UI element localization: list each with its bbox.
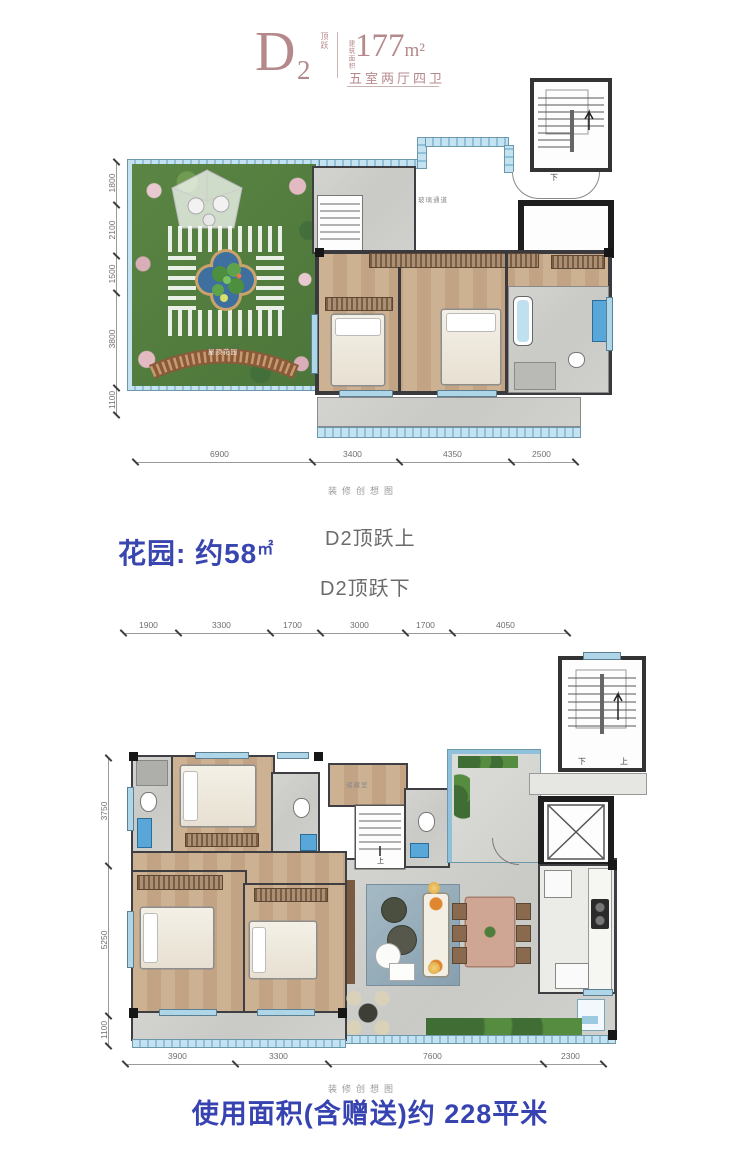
upper-dim-left-2: 2100 bbox=[107, 212, 117, 248]
upper-plan-caption: 装修创想图 bbox=[328, 484, 398, 497]
plan-code-number: 2 bbox=[297, 57, 311, 84]
toilet-1 bbox=[140, 792, 157, 812]
stair-up-label: 上 bbox=[620, 756, 629, 767]
suite-closet-top bbox=[370, 254, 538, 267]
vanity-2 bbox=[300, 834, 317, 851]
master-bed bbox=[141, 908, 213, 968]
usable-area-text: 使用面积(含赠送)约 228平米 bbox=[0, 1092, 740, 1131]
kitchen-window bbox=[584, 990, 612, 995]
master-closet bbox=[138, 876, 222, 889]
vanity-1 bbox=[137, 818, 152, 848]
window bbox=[312, 315, 317, 373]
plan-tag-vertical: 顶跃 bbox=[319, 32, 330, 50]
bedroom-balcony bbox=[133, 1013, 345, 1039]
side-table bbox=[390, 964, 414, 980]
wall-pier bbox=[314, 752, 323, 761]
wall-pier bbox=[315, 248, 324, 257]
stair-flights bbox=[562, 660, 642, 760]
upper-dim-left-4: 3800 bbox=[107, 321, 117, 357]
garden-paving-right bbox=[256, 252, 284, 310]
vanity-3 bbox=[410, 843, 429, 858]
lower-dim-top-1: 1900 bbox=[139, 620, 158, 630]
dining-chair bbox=[516, 903, 531, 920]
lotus-pond bbox=[194, 248, 258, 312]
wall-pier bbox=[338, 1008, 347, 1018]
upper-dim-left-1: 1800 bbox=[107, 165, 117, 201]
upper-terrace bbox=[318, 398, 580, 426]
inner-stair-label: 上 bbox=[377, 856, 385, 866]
kitchen-counter bbox=[589, 869, 611, 989]
stair-steps bbox=[356, 806, 404, 860]
dining-chair bbox=[516, 925, 531, 942]
garden-area-value: 花园: 约58 bbox=[118, 538, 257, 569]
wall-pier bbox=[604, 248, 613, 257]
plan-code-letter: D bbox=[255, 24, 295, 80]
lower-dim-bottom-3: 7600 bbox=[423, 1051, 442, 1061]
bathtub bbox=[513, 296, 533, 346]
dining-chair bbox=[452, 903, 467, 920]
header-underline bbox=[347, 86, 439, 87]
suite-partition bbox=[398, 267, 401, 392]
kitchen-sink-unit bbox=[556, 964, 588, 988]
area-number: 177 bbox=[355, 28, 405, 64]
armchair bbox=[382, 898, 406, 922]
upper-dim-bottom-2: 3400 bbox=[343, 449, 362, 459]
layout-text: 五室两厅四卫 bbox=[349, 68, 445, 87]
upper-duplex-label: D2顶跃上 bbox=[325, 522, 416, 551]
bedroom2-bed bbox=[332, 315, 384, 385]
header-block: D 2 顶跃 建筑面积 177m² 五室两厅四卫 bbox=[255, 24, 475, 94]
dining-table bbox=[466, 898, 514, 966]
dining-chair bbox=[452, 925, 467, 942]
balcony-greenery bbox=[426, 1018, 582, 1036]
upper-dim-line-bottom bbox=[135, 462, 575, 463]
storage-label: 储藏室 bbox=[346, 779, 369, 789]
garden-paving-left bbox=[168, 252, 196, 310]
lower-dim-left-3: 1100 bbox=[99, 1012, 109, 1048]
lower-dim-top-6: 4050 bbox=[496, 620, 515, 630]
lower-dim-top-3: 1700 bbox=[283, 620, 302, 630]
garden-area-text: 花园: 约58㎡ bbox=[118, 532, 274, 572]
glass-corridor-label: 玻璃通道 bbox=[418, 194, 448, 204]
upper-dim-bottom-3: 4350 bbox=[443, 449, 462, 459]
glass-corridor-segment bbox=[418, 138, 426, 168]
dining-chair bbox=[452, 947, 467, 964]
lower-dim-left-2: 5250 bbox=[99, 922, 109, 958]
tv-wall bbox=[347, 880, 355, 984]
toilet-2 bbox=[293, 798, 310, 818]
lower-dim-bottom-1: 3900 bbox=[168, 1051, 187, 1061]
shower-1 bbox=[136, 760, 168, 786]
upper-dim-bottom-4: 2500 bbox=[532, 449, 551, 459]
garden-deck bbox=[144, 332, 304, 380]
stair-steps bbox=[318, 196, 362, 252]
lift-lobby bbox=[530, 774, 646, 794]
interior-stair-upper bbox=[318, 196, 362, 252]
bedroom-3-closet bbox=[255, 889, 327, 901]
stairwell-window bbox=[584, 653, 620, 659]
bath-vanity bbox=[592, 300, 607, 342]
elevator-lower bbox=[538, 796, 614, 868]
window bbox=[438, 391, 496, 396]
floor-lamp bbox=[428, 882, 440, 894]
stair-flights bbox=[534, 82, 608, 168]
lower-dim-top-4: 3000 bbox=[350, 620, 369, 630]
bedroom-top-closet bbox=[186, 834, 258, 846]
upper-dim-left-5: 1100 bbox=[107, 382, 117, 418]
glass-corridor bbox=[320, 160, 424, 168]
window bbox=[160, 1010, 216, 1015]
wall-pier bbox=[129, 1008, 138, 1018]
laundry-closet bbox=[552, 256, 604, 268]
garden-lawn: 屋顶花园 bbox=[132, 164, 316, 386]
roof-garden: 屋顶花园 bbox=[128, 160, 320, 390]
window bbox=[128, 912, 133, 967]
fridge bbox=[545, 871, 571, 897]
toilet-upper bbox=[568, 352, 585, 368]
gazebo bbox=[166, 168, 248, 234]
garden-area-unit: ㎡ bbox=[257, 541, 274, 558]
wall-pier bbox=[608, 860, 617, 870]
upper-terrace-edge bbox=[318, 428, 580, 437]
bedroom-top-bed bbox=[181, 766, 255, 826]
lower-dim-top-5: 1700 bbox=[416, 620, 435, 630]
terrace-plants bbox=[454, 758, 470, 836]
terrace-plants-top bbox=[458, 756, 518, 768]
window bbox=[607, 298, 612, 350]
master-bed-upper bbox=[442, 310, 500, 384]
area-value: 177m² bbox=[355, 30, 425, 63]
lower-dim-line-bottom bbox=[125, 1064, 603, 1065]
stair-down-label: 下 bbox=[578, 756, 587, 767]
area-unit: m² bbox=[405, 40, 425, 61]
glass-corridor-segment bbox=[505, 146, 513, 172]
upper-dim-bottom-1: 6900 bbox=[210, 449, 229, 459]
toilet-3 bbox=[418, 812, 435, 832]
lower-dim-left-1: 3750 bbox=[99, 793, 109, 829]
upper-dim-left-3: 1500 bbox=[107, 256, 117, 292]
window bbox=[196, 753, 248, 758]
lower-dim-bottom-4: 2300 bbox=[561, 1051, 580, 1061]
glass-corridor-segment bbox=[426, 138, 508, 146]
window bbox=[278, 753, 308, 758]
bedroom2-closet bbox=[326, 298, 392, 310]
lower-dim-top-2: 3300 bbox=[212, 620, 231, 630]
lower-dim-bottom-2: 3300 bbox=[269, 1051, 288, 1061]
window bbox=[340, 391, 392, 396]
bedroom-balcony-edge bbox=[133, 1040, 345, 1047]
public-stairwell-lower: 下 上 bbox=[558, 656, 646, 772]
wall-pier bbox=[608, 1030, 617, 1040]
window bbox=[258, 1010, 314, 1015]
stove bbox=[591, 899, 609, 929]
lower-dim-line-top bbox=[123, 633, 567, 634]
shower-area bbox=[514, 362, 556, 390]
lower-duplex-label: D2顶跃下 bbox=[320, 572, 411, 601]
stair-down-label-upper: 下 bbox=[550, 172, 559, 183]
floor-lamp bbox=[428, 962, 440, 974]
interior-stair-lower: 上 bbox=[356, 806, 404, 868]
elevator-x bbox=[544, 802, 608, 862]
bedroom-3-bed bbox=[250, 922, 316, 978]
wall-pier bbox=[129, 752, 138, 761]
header-divider bbox=[337, 32, 338, 78]
area-caption-vertical: 建筑面积 bbox=[345, 40, 355, 70]
dining-chair bbox=[516, 947, 531, 964]
window bbox=[128, 788, 133, 830]
floorplan-page: D 2 顶跃 建筑面积 177m² 五室两厅四卫 1800 2100 1500 … bbox=[0, 0, 740, 1168]
living-balcony-edge bbox=[345, 1036, 615, 1043]
public-stairwell-upper bbox=[530, 78, 612, 172]
patio-set bbox=[346, 990, 390, 1036]
garden-label: 屋顶花园 bbox=[208, 346, 238, 356]
